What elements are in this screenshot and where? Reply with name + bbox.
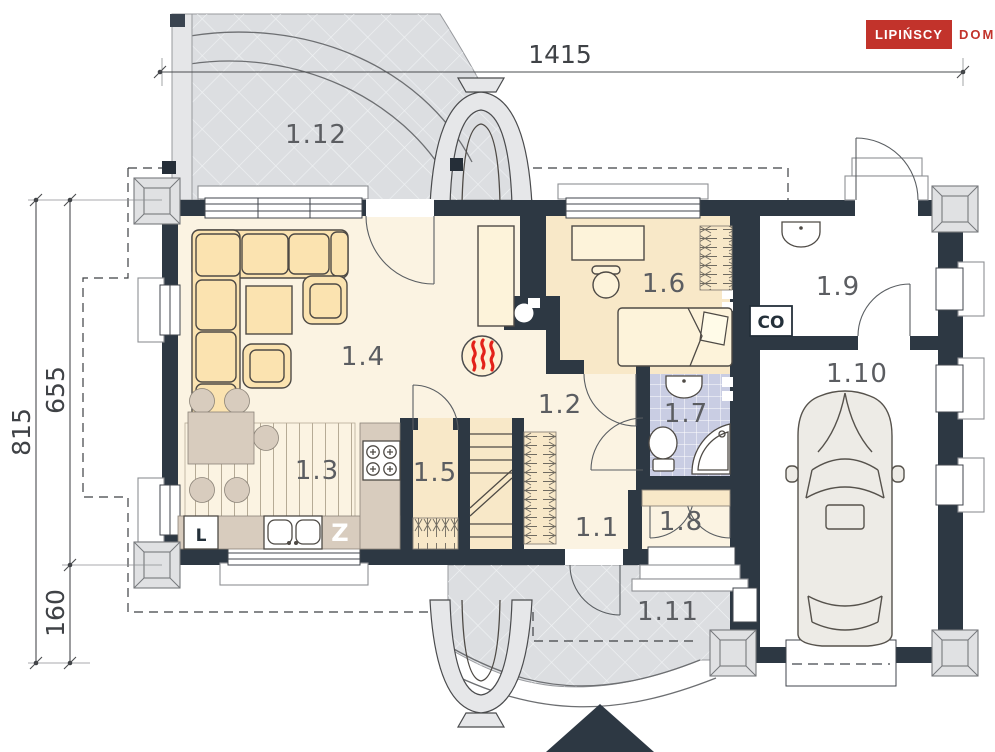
fireplace <box>462 336 502 376</box>
desk <box>572 226 644 260</box>
bedroom-window-sill <box>558 184 708 199</box>
boiler-marker: CO <box>758 313 785 333</box>
room-label-hall: 1.1 <box>575 513 619 543</box>
kitchen-window-sill <box>220 563 368 585</box>
back-door-opening <box>855 199 918 217</box>
living-window <box>205 198 362 218</box>
terrace-door-opening <box>366 199 434 217</box>
stove <box>363 441 400 480</box>
vestibule-shelf <box>642 490 730 506</box>
bedroom-window <box>566 198 700 218</box>
front-door <box>648 547 735 565</box>
right-window-2 <box>936 365 963 412</box>
brand-logo-primary: LIPIŃSCY <box>866 20 952 49</box>
room-label-terrace: 1.12 <box>285 120 347 150</box>
tv-cabinet <box>478 226 514 326</box>
room-label-bedroom: 1.6 <box>642 269 686 299</box>
right-window-1 <box>936 268 963 310</box>
floor-plan-page: 1.12 1.11 <box>0 0 995 752</box>
garage-door <box>786 640 896 686</box>
room-label-pantry: 1.5 <box>413 458 457 488</box>
pillow <box>700 312 728 345</box>
room-label-porch: 1.11 <box>637 597 699 627</box>
boiler-garage-door-opening <box>858 336 910 350</box>
kitchen-sink <box>264 516 322 549</box>
living-window-sill <box>198 186 368 199</box>
kitchen-window <box>228 547 360 565</box>
toilet <box>649 427 677 471</box>
front-door-steps <box>632 579 748 591</box>
room-label-kitchen: 1.3 <box>295 456 339 486</box>
entrance-north-marker <box>546 704 654 752</box>
room-label-vestibule: 1.8 <box>659 507 703 537</box>
terrace-area: 1.12 <box>162 14 532 205</box>
brand-logo: LIPIŃSCY DOMY <box>866 20 995 49</box>
desk-chair <box>592 266 620 298</box>
room-label-boiler: 1.9 <box>816 272 860 302</box>
room-label-bathroom: 1.7 <box>664 399 708 429</box>
dim-height-main: 655 <box>41 366 70 414</box>
room-label-garage: 1.10 <box>826 359 888 389</box>
room-label-corridor: 1.2 <box>538 390 582 420</box>
armchair-2 <box>243 344 291 388</box>
utility-sink <box>782 222 820 247</box>
coffee-table <box>246 286 292 334</box>
dim-height-total: 815 <box>7 408 36 456</box>
floor-plan-drawing: 1.12 1.11 <box>0 0 995 752</box>
garden-door-opening <box>565 549 623 565</box>
dining-table <box>188 412 254 464</box>
porch-area: 1.11 <box>430 565 748 752</box>
car <box>786 391 904 646</box>
bed <box>618 308 732 366</box>
dim-width-total: 1415 <box>528 40 592 69</box>
armchair-1 <box>303 276 347 324</box>
dim-height-garage-ext: 160 <box>41 589 70 637</box>
fridge-marker: L <box>196 526 207 546</box>
back-door-steps <box>845 176 928 200</box>
room-label-living: 1.4 <box>341 342 385 372</box>
right-window-3 <box>936 465 963 505</box>
porch-side-window <box>733 588 757 622</box>
dishwasher-marker: Z <box>331 519 348 547</box>
brand-logo-secondary: DOMY <box>952 20 995 49</box>
